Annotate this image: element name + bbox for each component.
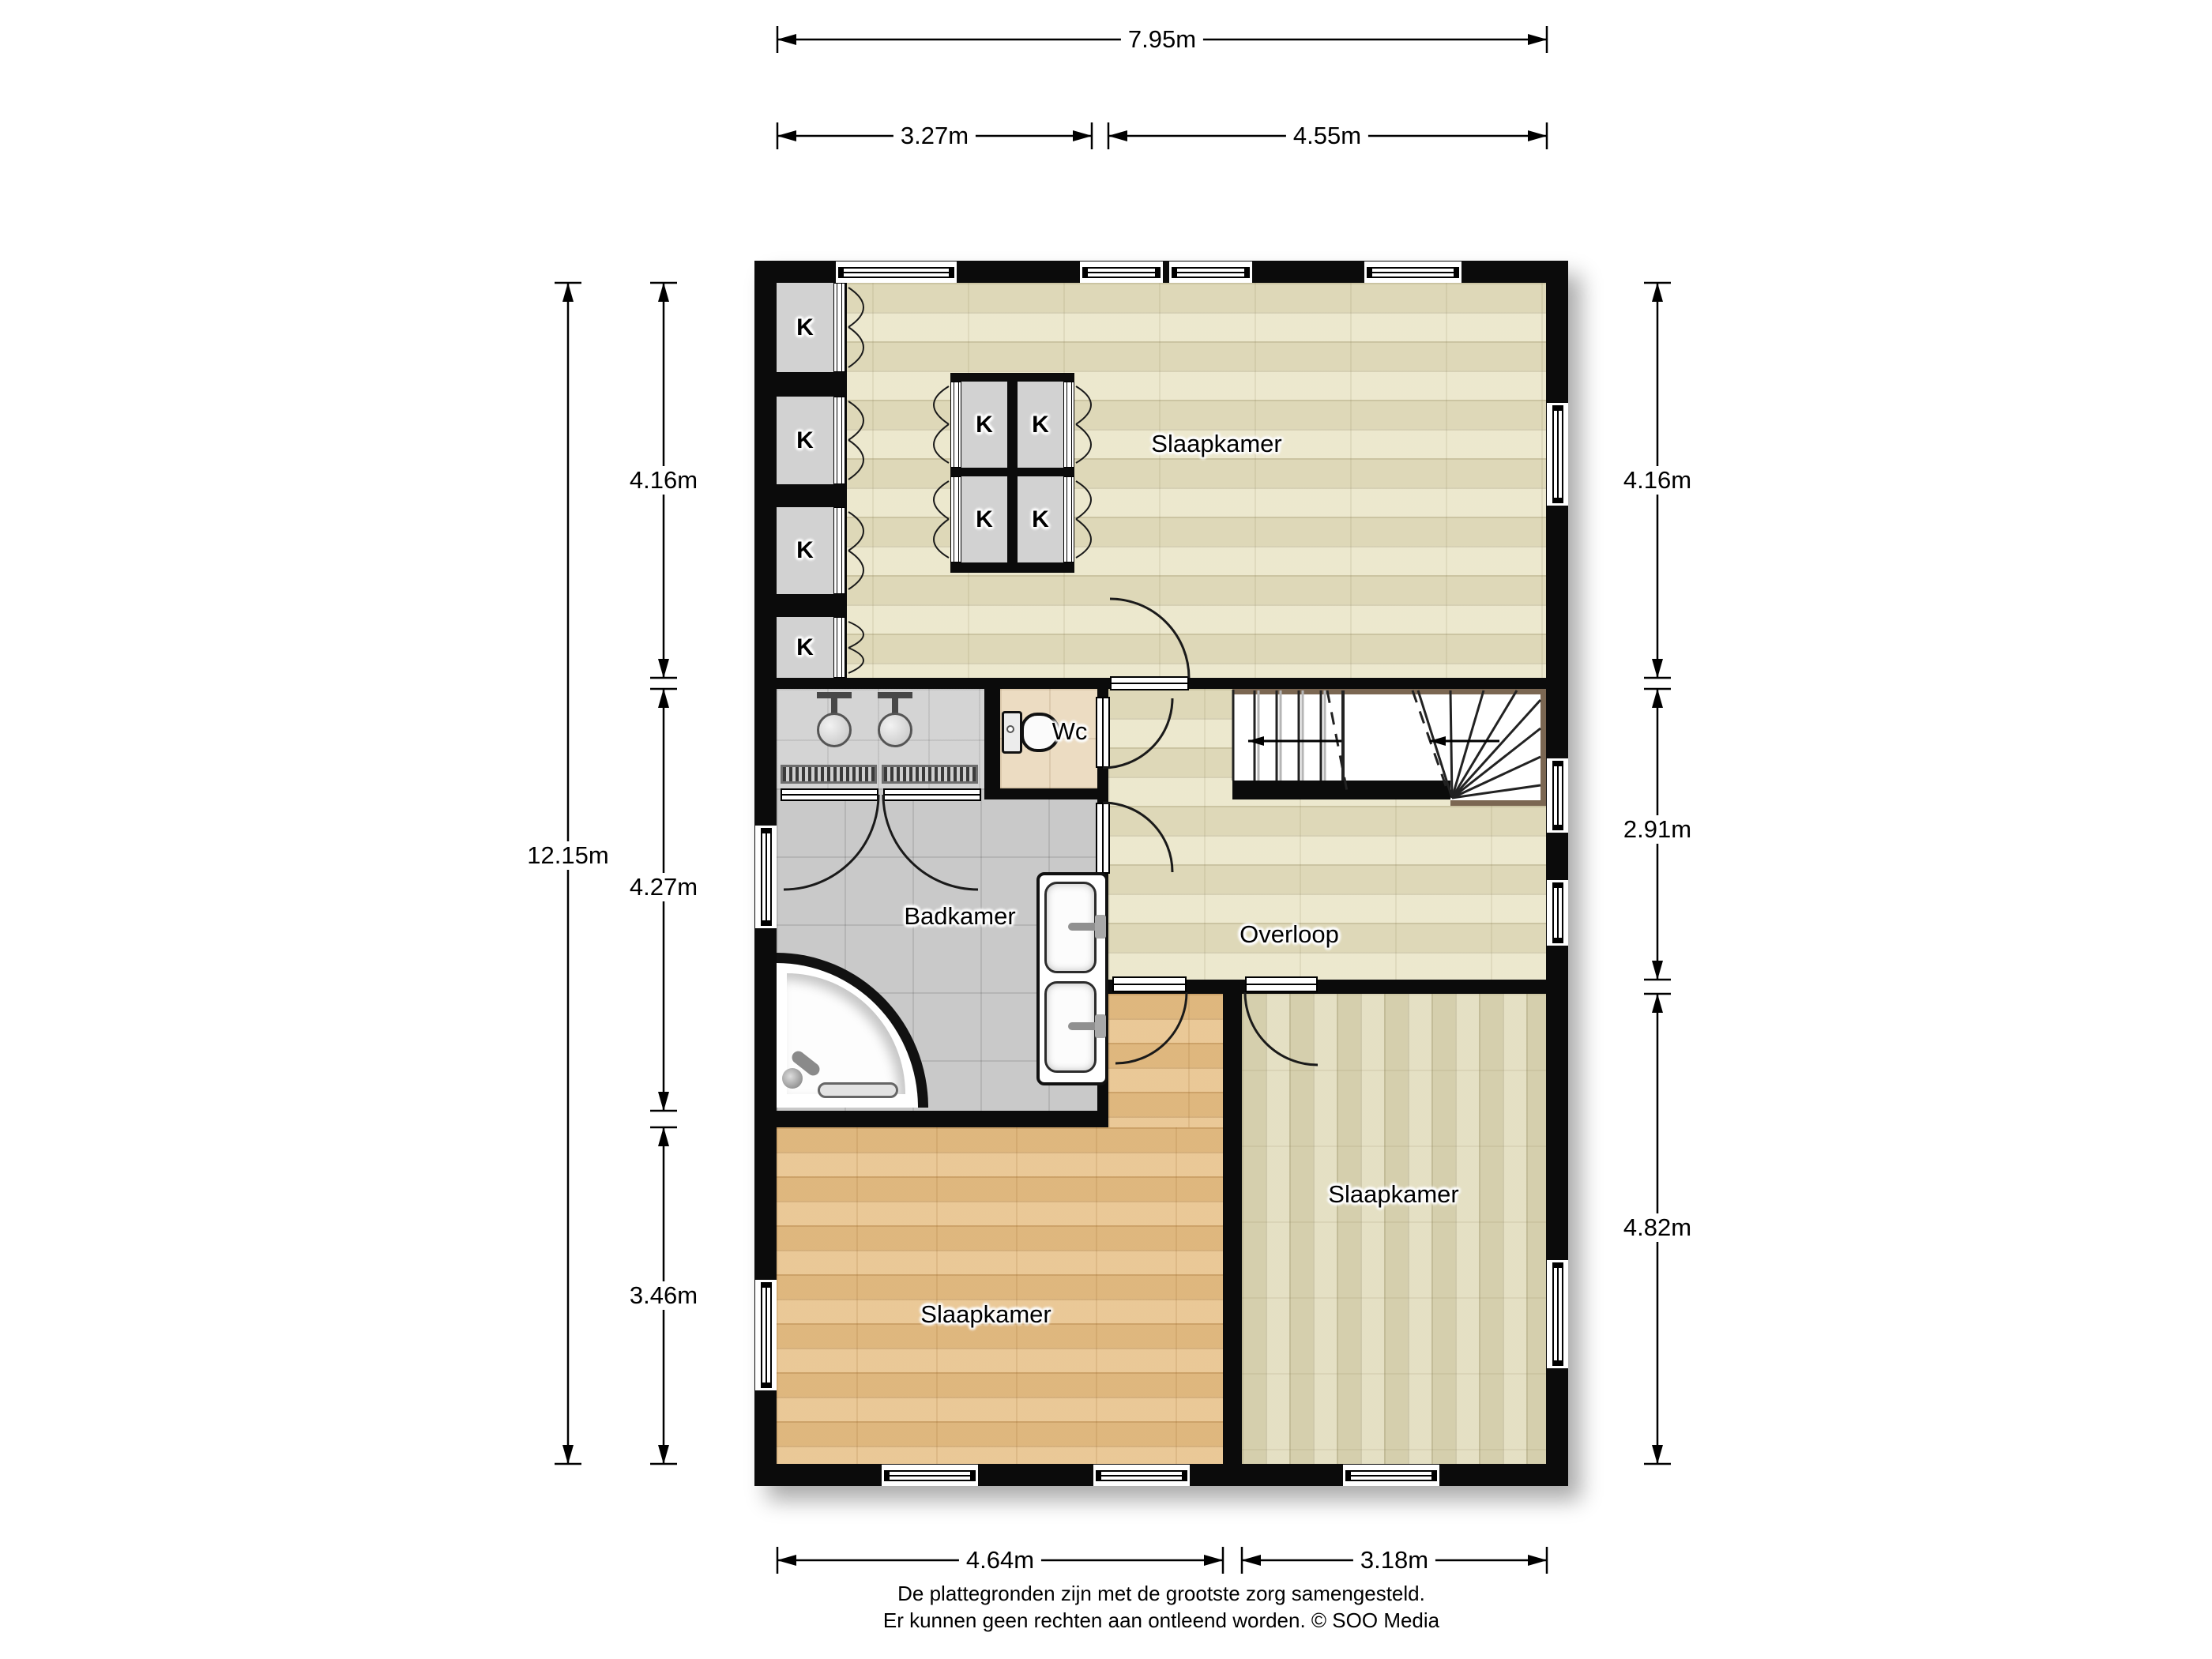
closet-door — [1063, 476, 1074, 562]
room-label-slaapkamer-right: Slaapkamer — [1328, 1180, 1458, 1209]
room-label-wc: Wc — [1052, 717, 1088, 746]
door-leaf-badkamer — [1096, 803, 1110, 874]
closet-label: K — [796, 314, 814, 341]
footer-line1: De plattegronden zijn met de grootste zo… — [608, 1580, 1714, 1607]
floor-slaapkamer-right — [1242, 994, 1546, 1464]
toilet-icon — [1006, 725, 1014, 733]
wall-h2-right-c — [1318, 980, 1546, 994]
shower-door-right — [883, 788, 981, 801]
closet-door — [950, 476, 961, 562]
stairs-trim-right — [1540, 689, 1546, 806]
window — [1343, 1465, 1439, 1486]
closet-door — [833, 283, 845, 372]
wall-wc-divider — [984, 689, 1000, 788]
shower-head-icon — [878, 713, 912, 747]
dim-right-a: 4.16m — [1616, 466, 1698, 495]
closet-door — [833, 617, 845, 678]
dim-top-total: 7.95m — [1121, 25, 1203, 54]
window — [1093, 1465, 1190, 1486]
closet-label: K — [976, 506, 993, 533]
closet-label: K — [1032, 412, 1049, 438]
window — [1364, 261, 1461, 283]
shower-head-icon — [817, 713, 852, 747]
wall-h1-right — [1189, 678, 1546, 689]
closet-door — [950, 382, 961, 468]
dim-top-a: 3.27m — [893, 122, 976, 150]
wall-mid-top-stub — [1097, 689, 1108, 697]
window-glass — [1367, 267, 1459, 278]
window-glass — [1552, 882, 1563, 943]
window — [755, 826, 777, 928]
hand-shower-icon — [782, 1068, 803, 1089]
shower-drain-icon — [882, 765, 978, 784]
closet-label: K — [796, 634, 814, 661]
wall-bottom-rooms — [1223, 980, 1242, 1464]
stairs-wall-below — [1232, 781, 1450, 799]
door-leaf-slaapkamer-right — [1245, 976, 1318, 992]
window-glass — [761, 828, 772, 926]
closet-label: K — [796, 537, 814, 564]
wall-mid-between-doors — [1097, 768, 1108, 803]
window-glass — [838, 267, 954, 278]
window-glass — [1345, 1470, 1437, 1481]
faucet-icon — [1095, 1014, 1106, 1038]
room-label-badkamer: Badkamer — [904, 902, 1015, 931]
closet-door — [833, 507, 845, 594]
closet-label: K — [1032, 506, 1049, 533]
shower-rail-icon — [818, 1082, 898, 1098]
door-leaf-wc — [1096, 697, 1110, 768]
window-glass — [761, 1282, 772, 1388]
window-glass — [1552, 761, 1563, 830]
shower-head-icon — [878, 692, 912, 698]
window-glass — [1552, 1262, 1563, 1366]
wall-h1-left — [777, 678, 1110, 689]
dim-bottom-b: 3.18m — [1353, 1546, 1435, 1574]
door-leaf-bedroom-top — [1110, 676, 1189, 690]
wall-h2-left — [754, 1111, 1108, 1127]
faucet-icon — [1095, 915, 1106, 939]
dim-left-b: 4.27m — [623, 873, 705, 901]
window-glass — [1096, 1470, 1187, 1481]
room-label-slaapkamer-left: Slaapkamer — [920, 1300, 1051, 1329]
closet-label: K — [796, 427, 814, 454]
footer-line2: Er kunnen geen rechten aan ontleend word… — [608, 1607, 1714, 1634]
dim-right-c: 4.82m — [1616, 1213, 1698, 1242]
window-glass — [884, 1470, 976, 1481]
floor-corridor-strip — [1108, 994, 1223, 1127]
dim-left-total: 12.15m — [520, 841, 615, 870]
room-label-overloop: Overloop — [1240, 920, 1339, 949]
window — [755, 1280, 777, 1390]
window — [882, 1465, 978, 1486]
window — [1169, 261, 1252, 283]
window — [1547, 403, 1568, 506]
footer-disclaimer: De plattegronden zijn met de grootste zo… — [608, 1580, 1714, 1634]
window — [1547, 758, 1568, 833]
window-glass — [1082, 267, 1161, 278]
shower-door-left — [781, 788, 878, 801]
stairs-trim-top — [1232, 689, 1546, 694]
closet-label: K — [976, 412, 993, 438]
window-glass — [1172, 267, 1250, 278]
floor-slaapkamer-left — [777, 1127, 1223, 1464]
dim-top-b: 4.55m — [1286, 122, 1368, 150]
stairs-trim-bottom — [1450, 800, 1546, 806]
window — [1547, 1260, 1568, 1368]
closet-door — [833, 397, 845, 484]
dim-left-c: 3.46m — [623, 1281, 705, 1310]
window — [1547, 880, 1568, 946]
window — [836, 261, 957, 283]
window — [1080, 261, 1163, 283]
window-glass — [1552, 405, 1563, 503]
dim-right-b: 2.91m — [1616, 815, 1698, 844]
wall-below-wc — [984, 788, 1108, 799]
shower-head-icon — [817, 692, 852, 698]
stairs-area — [1232, 689, 1546, 781]
room-label-slaapkamer-top: Slaapkamer — [1151, 430, 1281, 458]
floor-slaapkamer-top — [777, 283, 1546, 678]
window-mullion — [1163, 261, 1169, 283]
dim-bottom-a: 4.64m — [959, 1546, 1041, 1574]
door-leaf-slaapkamer-left — [1112, 976, 1187, 992]
dim-left-a: 4.16m — [623, 466, 705, 495]
floorplan: 7.95m 3.27m 4.55m 12.15m 4.16m 4.27m 3.4… — [0, 0, 2212, 1659]
closet-door — [1063, 382, 1074, 468]
shower-drain-icon — [781, 765, 877, 784]
